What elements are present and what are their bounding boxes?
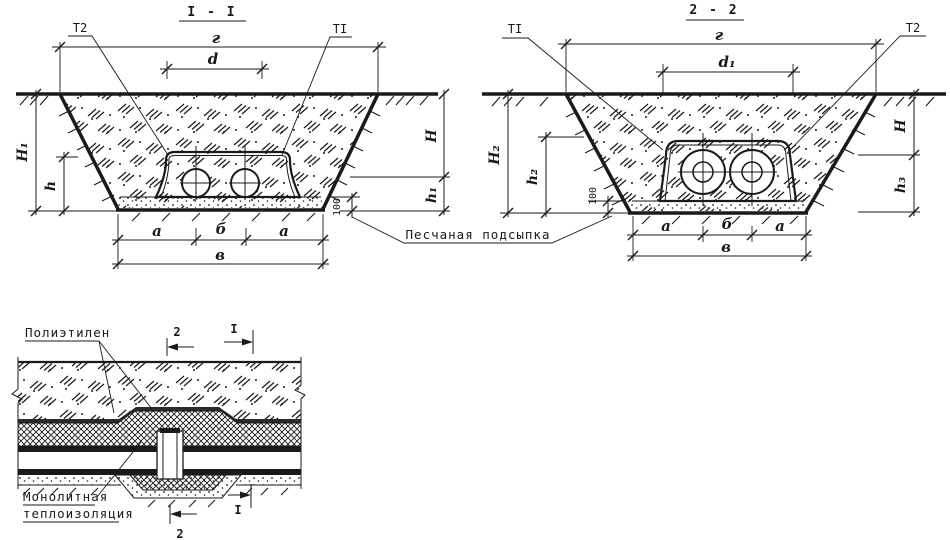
cut-mark-1-top-label: I xyxy=(230,322,237,336)
dim-pipe-spacing-2: d₁ xyxy=(718,53,735,71)
insulation-label-line2: теплоизоляция xyxy=(23,506,134,521)
section-1-1: I - I Т2 ТI г d H₁ h H h₁ 100 xyxy=(15,5,450,269)
dim-pipe-spacing-1: d xyxy=(208,50,219,68)
dim-h2: h₂ xyxy=(525,169,541,185)
detail-sand-right xyxy=(236,475,301,485)
pipe-label-t2-1: Т2 xyxy=(73,21,87,35)
cut-mark-2-bottom-label: 2 xyxy=(176,527,183,540)
dim-h3: h₃ xyxy=(893,177,909,193)
drawing-canvas: I - I Т2 ТI г d H₁ h H h₁ 100 xyxy=(0,0,950,540)
dim-b-2: б xyxy=(722,215,733,233)
dim-b-1: б xyxy=(216,220,227,238)
dim-v-2: в xyxy=(721,238,731,256)
detail-sand-left xyxy=(18,475,121,485)
section-1-title: I - I xyxy=(187,5,236,20)
polyethylene-label: Полиэтилен xyxy=(25,325,110,340)
dim-100-2: 100 xyxy=(588,187,599,205)
joint-detail: Полиэтилен Монолитная теплоизоляция 2 I … xyxy=(12,322,305,540)
cut-mark-1-bottom: I xyxy=(228,484,251,517)
dim-h1: h₁ xyxy=(424,187,440,203)
dim-H-1: H xyxy=(424,129,440,144)
dim-H2: H₂ xyxy=(487,145,503,165)
pipe-label-t2-2: Т2 xyxy=(906,21,920,35)
cut-mark-1-bottom-label: I xyxy=(234,503,241,517)
dim-a-right-2: а xyxy=(775,217,785,235)
cut-mark-1-top: I xyxy=(224,322,253,354)
dim-100-1: 100 xyxy=(332,198,343,216)
cut-mark-2-bottom: 2 xyxy=(170,505,197,540)
technical-drawing: I - I Т2 ТI г d H₁ h H h₁ 100 xyxy=(0,0,950,540)
dim-H-2: H xyxy=(893,119,909,134)
sand-bedding-2 xyxy=(630,201,806,211)
dim-top-width-1: г xyxy=(212,29,221,47)
dim-a-left-1: а xyxy=(152,222,162,240)
dim-v-1: в xyxy=(215,246,225,264)
sand-bedding-callout: Песчаная подсыпка xyxy=(352,216,612,243)
sand-bedding-1 xyxy=(118,197,323,208)
section-2-title: 2 - 2 xyxy=(689,3,738,18)
dim-H1: H₁ xyxy=(15,142,31,162)
dim-a-right-1: а xyxy=(279,222,289,240)
detail-coupling xyxy=(157,428,183,479)
dim-top-width-2: г xyxy=(715,26,724,44)
pipe-label-t1-2: ТI xyxy=(508,22,522,36)
dim-h: h xyxy=(43,181,59,191)
cut-mark-2-top: 2 xyxy=(167,325,194,356)
dim-a-left-2: а xyxy=(661,217,671,235)
section-2-2: 2 - 2 ТI Т2 г d₁ H₂ h₂ 100 H h₃ а xyxy=(482,3,946,261)
cut-mark-2-top-label: 2 xyxy=(173,325,180,339)
soil-backfill-2 xyxy=(566,95,876,211)
insulation-label-line1: Монолитная xyxy=(23,489,108,504)
sand-bedding-label: Песчаная подсыпка xyxy=(406,227,551,242)
pipe-label-t1-1: ТI xyxy=(333,22,347,36)
